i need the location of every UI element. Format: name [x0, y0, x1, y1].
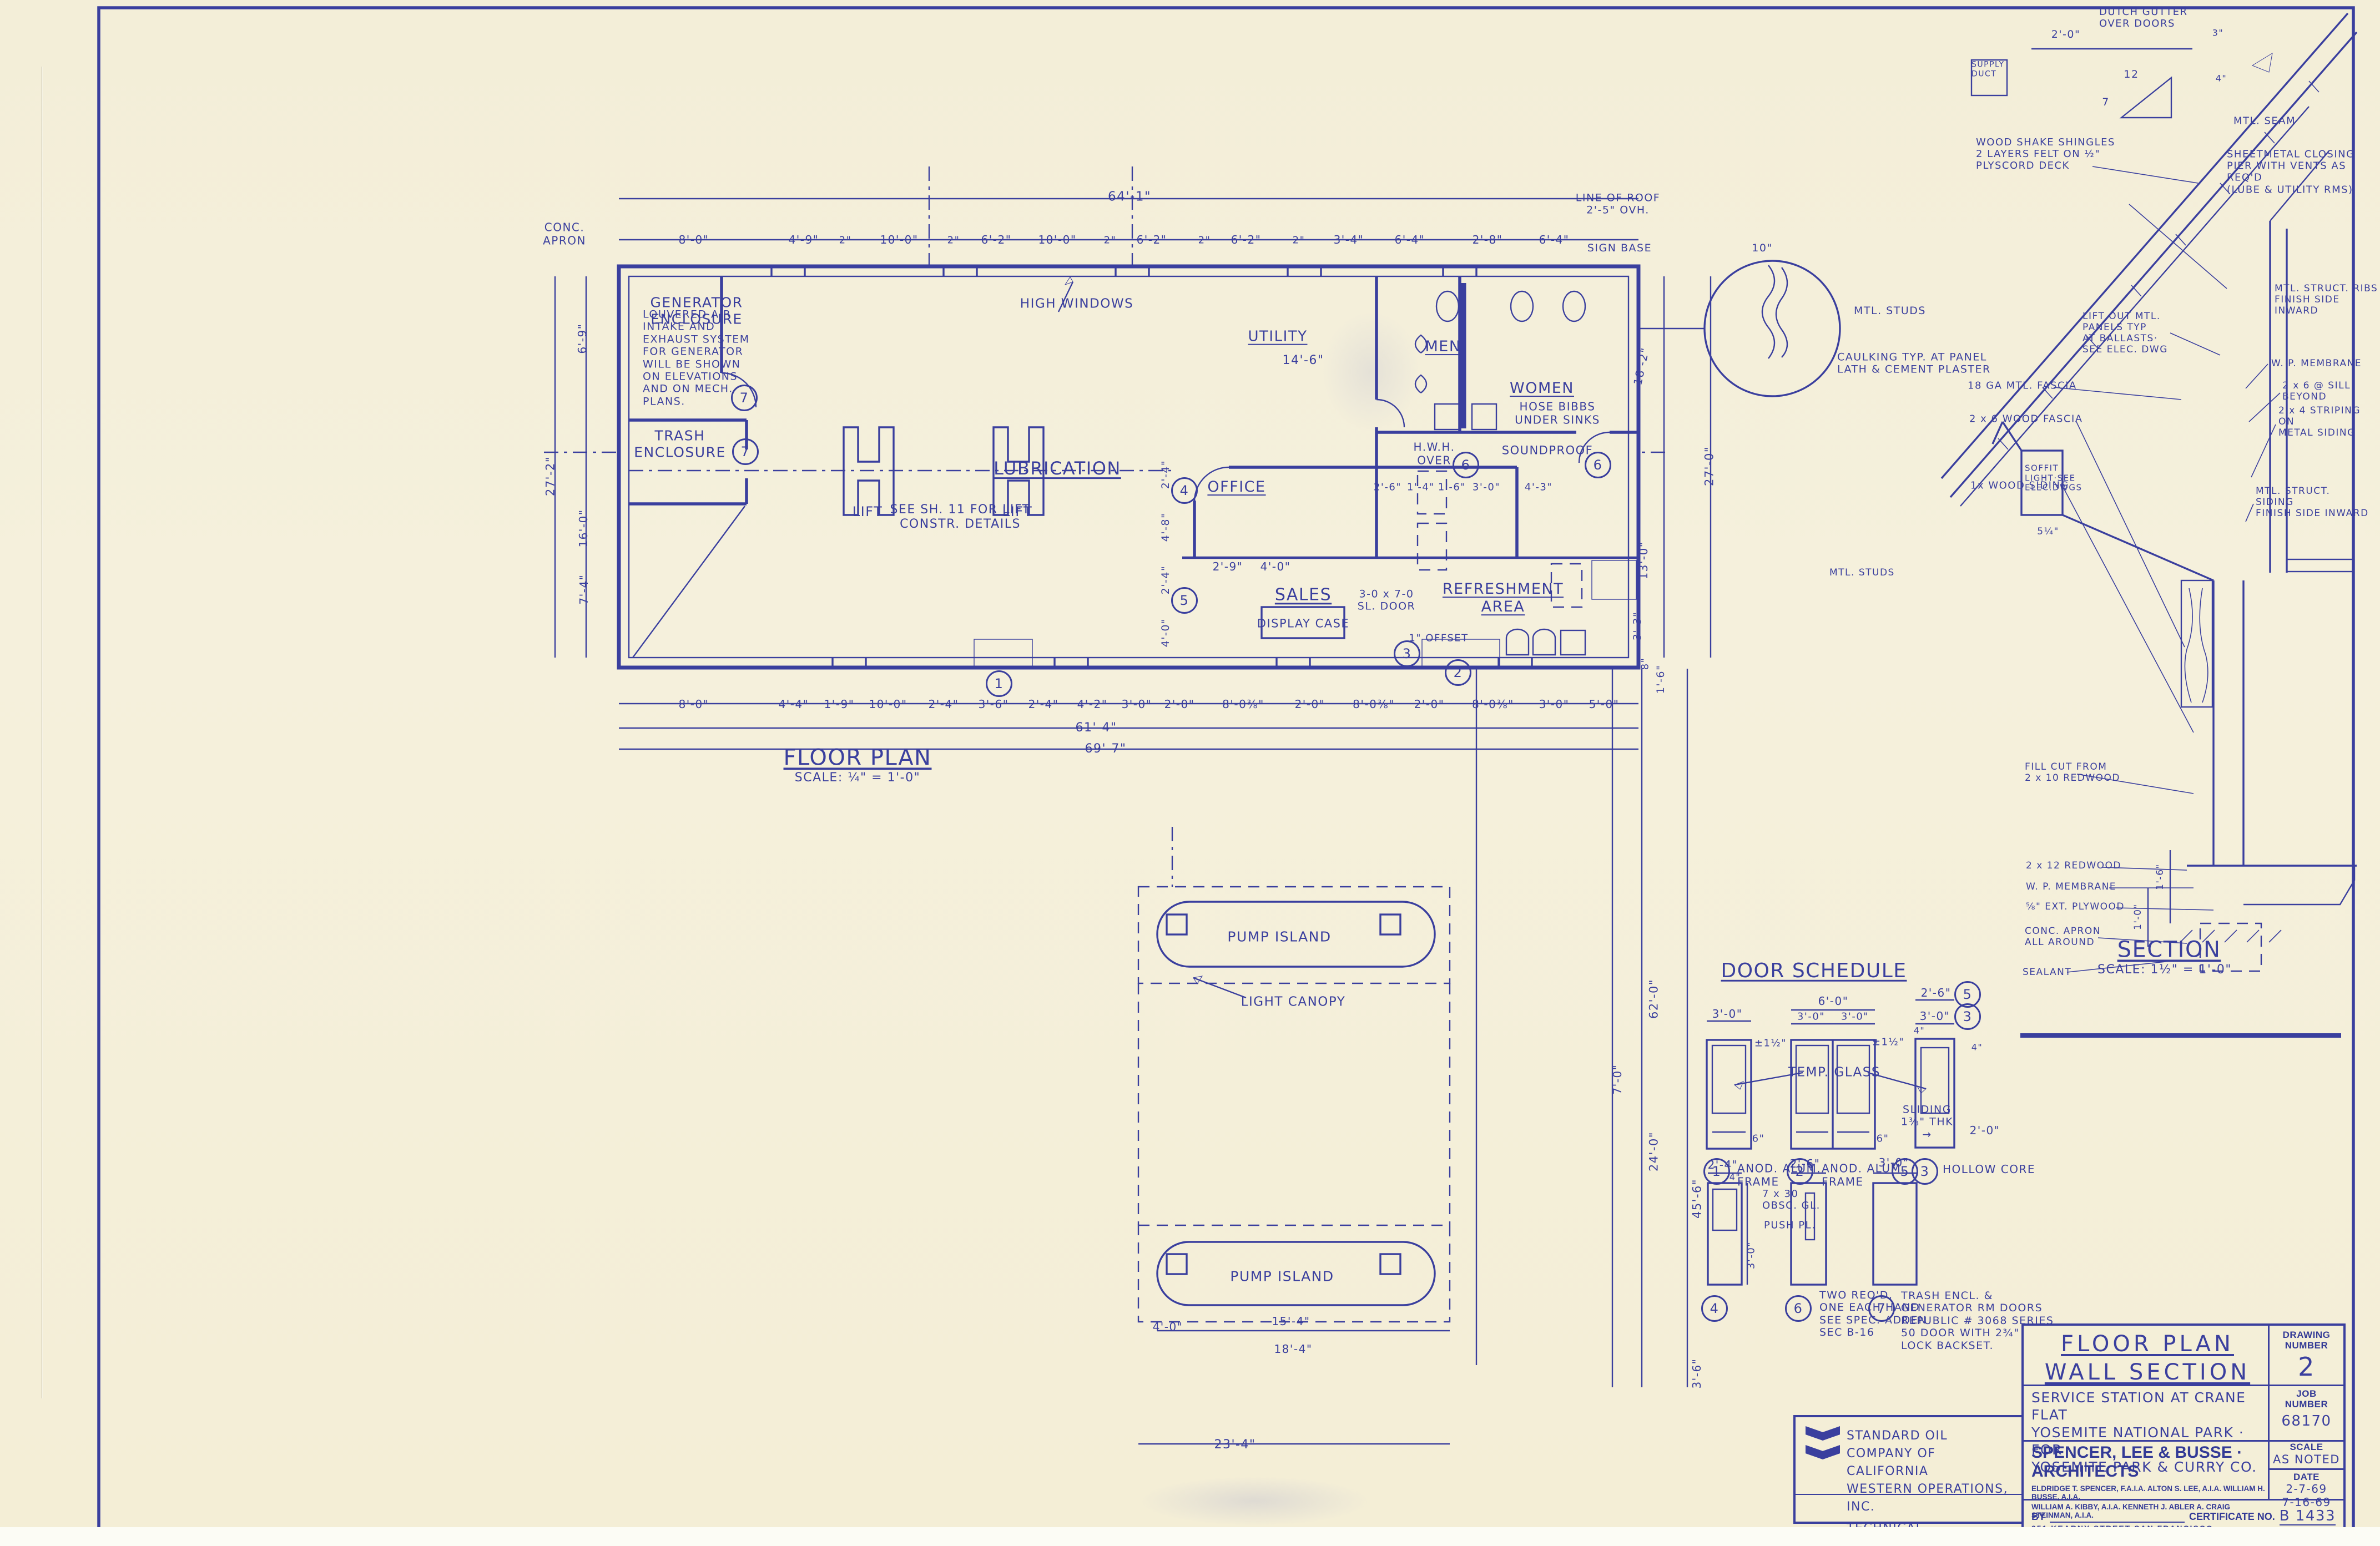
- annotation-text: 10'-0": [1038, 234, 1076, 247]
- annotation-text: 3'-4": [1334, 234, 1364, 247]
- annotation-text: W. P. MEMBRANE: [2026, 881, 2116, 892]
- annotation-text: 1'-6": [2155, 863, 2166, 890]
- annotation-text: 2 x 6 WOOD FASCIA: [1969, 413, 2083, 425]
- keynote-circle-4: 4: [1701, 1295, 1728, 1322]
- annotation-text: 2'-9": [1213, 560, 1243, 574]
- keynote-circle-2: 2: [1445, 659, 1471, 686]
- drawing-number-value: 2: [2270, 1352, 2343, 1382]
- keynote-circle-6: 6: [1785, 1295, 1812, 1322]
- lift-label: LIFT: [853, 504, 883, 519]
- annotation-text: CAULKING TYP. AT PANEL LATH & CEMENT PLA…: [1837, 351, 1991, 376]
- annotation-text: W. P. MEMBRANE: [2271, 358, 2362, 369]
- door-schedule-title: DOOR SCHEDULE: [1721, 959, 1907, 983]
- floor-plan-title: FLOOR PLAN: [784, 745, 932, 771]
- annotation-text: 3'-6": [1691, 1358, 1704, 1389]
- project-name-line1: SERVICE STATION AT CRANE FLAT: [2031, 1389, 2266, 1424]
- annotation-text: SOUNDPROOF: [1502, 444, 1594, 458]
- keynote-circle-7: 7: [731, 385, 758, 411]
- keynote-circle-3: 3: [1394, 640, 1420, 667]
- annotation-text: 3'-0": [1841, 1011, 1869, 1022]
- annotation-text: 2'-0": [1414, 698, 1445, 711]
- keynote-circle-3: 3: [1912, 1158, 1938, 1185]
- annotation-text: 4'-3": [1525, 481, 1552, 493]
- annotation-text: LINE OF ROOF 2'-5" OVH.: [1576, 192, 1660, 217]
- display-case-label: DISPLAY CASE: [1257, 617, 1349, 631]
- architect-firm-name: SPENCER, LEE & BUSSE · ARCHITECTS: [2031, 1443, 2266, 1481]
- annotation-text: 2": [1293, 234, 1305, 246]
- annotation-text: 10": [1752, 242, 1772, 254]
- annotation-text: 23'-4": [1214, 1438, 1255, 1452]
- annotation-text: 18'-4": [1274, 1343, 1312, 1356]
- annotation-text: 3'-0": [1745, 1241, 1757, 1269]
- annotation-text: 15'-4": [1272, 1315, 1310, 1328]
- annotation-text: 6": [1877, 1133, 1889, 1144]
- room-label-men: MEN: [1425, 338, 1461, 356]
- annotation-text: MTL. STUDS: [1854, 305, 1926, 317]
- room-label-refreshment-area: REFRESHMENT AREA: [1443, 580, 1564, 616]
- annotation-text: ±1½": [1872, 1036, 1904, 1048]
- annotation-text: WOOD SHAKE SHINGLES 2 LAYERS FELT ON ½" …: [1976, 137, 2115, 172]
- annotation-text: 8": [1639, 658, 1651, 670]
- annotation-text: 10'-0": [880, 234, 918, 247]
- annotation-text: 2 x 12 REDWOOD: [2026, 860, 2121, 871]
- annotation-text: 4'-2": [1077, 698, 1108, 711]
- annotation-text: 2": [1104, 234, 1117, 246]
- annotation-text: ±1½": [1754, 1037, 1787, 1049]
- job-number-value: 68170: [2270, 1413, 2343, 1429]
- annotation-text: 27'-0": [1703, 446, 1717, 486]
- annotation-text: 3'-0": [1712, 1008, 1743, 1021]
- annotation-text: CONC. APRON: [543, 221, 586, 247]
- annotation-text: 64'-1": [1108, 189, 1151, 204]
- annotation-text: SIGN BASE: [1587, 242, 1652, 254]
- architect-address-2: 405 TOWN & COUNTRY VILLAGE PALO ALTO, CA…: [2031, 1543, 2266, 1546]
- client-role: TECHNICAL CONSULTANTS: [1847, 1520, 2017, 1546]
- room-label-trash-enclosure: TRASH ENCLOSURE: [634, 428, 726, 461]
- annotation-text: 3'-0": [1797, 1011, 1825, 1022]
- annotation-text: 2'-8": [1473, 234, 1503, 247]
- annotation-text: 1'-4": [1407, 481, 1435, 493]
- annotation-text: 4'-0": [1260, 560, 1291, 574]
- annotation-text: 4'-8": [1159, 513, 1172, 542]
- annotation-text: 3'-6": [979, 698, 1009, 711]
- section-scale: SCALE: 1½" = 1'-0": [2097, 963, 2232, 977]
- annotation-text: 1'-0": [2132, 903, 2144, 930]
- annotation-text: 2": [947, 234, 960, 246]
- keynote-circle-1: 1: [1703, 1158, 1730, 1185]
- annotation-text: 6'-0": [1818, 995, 1849, 1008]
- annotation-text: 2'-4": [1159, 565, 1172, 595]
- annotation-text: 2'-0": [1295, 698, 1325, 711]
- annotation-text: 62'-0": [1647, 979, 1661, 1019]
- annotation-text: CONC. APRON ALL AROUND: [2025, 926, 2101, 948]
- client-name: STANDARD OIL COMPANY OF CALIFORNIA: [1847, 1427, 2017, 1481]
- annotation-text: 4": [2216, 74, 2227, 84]
- annotation-text: 2'-0": [1164, 698, 1195, 711]
- sheet-title-line1: FLOOR PLAN: [2029, 1331, 2266, 1357]
- light-canopy-label: LIGHT CANOPY: [1241, 994, 1346, 1009]
- annotation-text: 4'-9": [789, 234, 819, 247]
- annotation-text: 1x WOOD SIDING: [1970, 479, 2069, 491]
- keynote-circle-1: 1: [986, 670, 1012, 697]
- annotation-text: SLIDING 1⅜" THK →: [1901, 1103, 1953, 1140]
- annotation-text: 4'-0": [1153, 1321, 1183, 1334]
- annotation-text: 3'-0": [1473, 481, 1500, 493]
- annotation-text: 4'-0": [1159, 618, 1172, 648]
- title-block: FLOOR PLAN WALL SECTION DRAWING NUMBER 2…: [2021, 1323, 2346, 1536]
- job-number-cell: JOB NUMBER 68170: [2268, 1385, 2343, 1440]
- room-label-utility: UTILITY: [1248, 329, 1308, 346]
- annotation-text: 2'-4": [1028, 698, 1059, 711]
- job-number-label: JOB NUMBER: [2270, 1389, 2343, 1409]
- annotation-text: 7'-4": [578, 574, 591, 605]
- annotation-text: 8'-0⅜": [1472, 698, 1514, 711]
- annotation-text: 27'-2": [544, 456, 558, 496]
- annotation-text: 6'-2": [1137, 234, 1167, 247]
- annotation-text: 8'-0⅜": [1222, 698, 1264, 711]
- annotation-text: HOLLOW CORE: [1943, 1163, 2035, 1176]
- annotation-text: FILL CUT FROM 2 x 10 REDWOOD: [2025, 761, 2120, 784]
- annotation-text: 8'-0": [679, 698, 709, 711]
- annotation-text: ⅝" EXT. PLYWOOD: [2026, 901, 2125, 912]
- annotation-text: 5'-0": [1589, 698, 1620, 711]
- annotation-text: DUTCH GUTTER OVER DOORS: [2099, 6, 2187, 29]
- annotation-text: 1" OFFSET: [1409, 632, 1468, 644]
- annotation-text: 3'-0": [1920, 1010, 1950, 1023]
- keynote-circle-2: 2: [1787, 1158, 1813, 1185]
- keynote-circle-7: 7: [1868, 1295, 1895, 1322]
- annotation-text: MTL. SEAM: [2233, 115, 2296, 127]
- annotation-text: 18 GA MTL. FASCIA: [1968, 380, 2077, 391]
- annotation-text: 16'-0": [577, 509, 591, 547]
- annotation-text: 3'-0": [1122, 698, 1152, 711]
- floor-plan-scale: SCALE: ¼" = 1'-0": [795, 771, 920, 785]
- annotation-text: 1'-6": [1438, 481, 1466, 493]
- keynote-circle-6: 6: [1585, 452, 1611, 478]
- annotation-text: 4'-4": [779, 698, 809, 711]
- annotation-text: 2'-6": [1921, 987, 1952, 1000]
- annotation-text: 2": [1198, 234, 1211, 246]
- annotation-text: 3'-3": [1631, 612, 1643, 641]
- annotation-text: 14'-6": [1282, 353, 1324, 368]
- annotation-text: 6'-4": [1539, 234, 1570, 247]
- annotation-text: LIFT OUT MTL. PANELS TYP AT BALLASTS· SE…: [2082, 311, 2168, 355]
- annotation-text: HIGH WINDOWS: [1020, 296, 1133, 311]
- room-label-women: WOMEN: [1510, 380, 1574, 397]
- annotation-text: SEE SH. 11 FOR LIFT CONSTR. DETAILS: [890, 503, 1030, 532]
- annotation-text: 13'-0": [1637, 541, 1651, 579]
- annotation-text: 10'-0": [869, 698, 907, 711]
- drawing-number-label: DRAWING NUMBER: [2270, 1330, 2343, 1351]
- annotation-text: 7: [2102, 96, 2110, 108]
- annotation-text: 45'-6": [1691, 1179, 1705, 1219]
- annotation-text: 4": [1729, 1173, 1741, 1183]
- date-label: DATE: [2270, 1472, 2343, 1483]
- annotation-text: 8'-0": [679, 234, 709, 247]
- annotation-text: 6": [1752, 1133, 1765, 1144]
- section-title: SECTION: [2117, 937, 2221, 963]
- annotation-text: 2'-6": [1374, 481, 1401, 493]
- annotation-text: 1'-9": [824, 698, 855, 711]
- annotation-text: 24'-0": [1647, 1131, 1661, 1171]
- keynote-circle-6: 6: [1453, 452, 1479, 478]
- annotation-text: 2'-0": [2051, 28, 2081, 41]
- annotation-text: 61'-4": [1075, 721, 1117, 735]
- annotation-text: 2 x 4 STRIPING ON METAL SIDING: [2278, 405, 2380, 438]
- annotation-text: 6'-9": [576, 324, 589, 354]
- certificate-label: CERTIFICATE NO.: [2189, 1511, 2275, 1523]
- pump-island-label: PUMP ISLAND: [1230, 1268, 1334, 1285]
- annotation-text: 1'-6": [1655, 665, 1667, 694]
- annotation-text: 6'-2": [1231, 234, 1262, 247]
- annotation-text: 2'-4": [1159, 460, 1172, 489]
- annotation-text: 6'-4": [1395, 234, 1425, 247]
- room-label-sales: SALES: [1275, 585, 1332, 604]
- annotation-text: 8'-0⅜": [1353, 698, 1395, 711]
- annotation-text: 12: [2124, 68, 2139, 80]
- blueprint-sheet: FLOOR PLANSCALE: ¼" = 1'-0"SECTIONSCALE:…: [0, 0, 2380, 1546]
- annotation-text: MTL. STUDS: [1829, 567, 1895, 578]
- sheet-title-line2: WALL SECTION: [2029, 1360, 2266, 1386]
- by-label: BY: [2031, 1511, 2045, 1523]
- interior-finish-schedule: [2020, 1033, 2341, 1038]
- pump-island-label: PUMP ISLAND: [1227, 928, 1331, 945]
- keynote-circle-5: 5: [1171, 587, 1198, 614]
- keynote-circle-3: 3: [1954, 1003, 1981, 1030]
- annotation-text: 3-0 x 7-0 SL. DOOR: [1358, 588, 1415, 613]
- annotation-text: 2": [839, 234, 852, 246]
- annotation-text: 69'-7": [1085, 742, 1126, 756]
- annotation-text: 4": [1914, 1026, 1925, 1037]
- room-label-lubrication: LUBRICATION: [994, 458, 1121, 479]
- drawing-number-cell: DRAWING NUMBER 2: [2268, 1326, 2343, 1385]
- annotation-text: 7 x 30 OBSC. GL.: [1762, 1188, 1821, 1211]
- annotation-text: 7'-0": [1611, 1064, 1625, 1095]
- date-value-1: 2-7-69: [2270, 1482, 2343, 1496]
- scale-value: AS NOTED: [2270, 1453, 2343, 1466]
- annotation-text: HOSE BIBBS UNDER SINKS: [1515, 400, 1600, 426]
- annotation-text: PUSH PL.: [1764, 1219, 1816, 1231]
- annotation-text: MTL. STRUCT. SIDING FINISH SIDE INWARD: [2256, 486, 2369, 519]
- annotation-text: 4": [1971, 1043, 1983, 1053]
- client-division: WESTERN OPERATIONS, INC.: [1847, 1481, 2017, 1516]
- scale-label: SCALE: [2270, 1442, 2343, 1453]
- annotation-text: 2 x 6 @ SILL BEYOND: [2282, 380, 2351, 402]
- temp-glass-note: TEMP. GLASS: [1788, 1065, 1880, 1080]
- annotation-text: 3'-0": [1539, 698, 1570, 711]
- client-block-divider: [1796, 1494, 2021, 1495]
- annotation-text: H.W.H. OVER: [1414, 441, 1455, 467]
- by-signature-line: [2050, 1510, 2185, 1523]
- annotation-text: SUPPLY DUCT: [1971, 60, 2005, 78]
- standard-oil-chevron-logo: [1806, 1426, 1840, 1462]
- annotation-text: 5¼": [2037, 526, 2059, 537]
- annotation-text: 2'-0": [1970, 1124, 2000, 1138]
- certificate-value: B 1433: [2280, 1508, 2336, 1525]
- room-label-office: OFFICE: [1207, 478, 1265, 496]
- annotation-text: MTL. STRUCT. RIBS FINISH SIDE INWARD: [2275, 283, 2380, 316]
- annotation-text: SHEETMETAL CLOSING PIER WITH VENTS AS RE…: [2227, 149, 2380, 196]
- keynote-circle-4: 4: [1171, 477, 1198, 504]
- annotation-text: SEALANT: [2023, 967, 2071, 978]
- annotation-text: 3": [2212, 28, 2224, 39]
- keynote-circle-7: 7: [732, 438, 759, 465]
- annotation-text: 2'-4": [929, 698, 959, 711]
- annotation-text: 6'-2": [981, 234, 1012, 247]
- client-block: STANDARD OIL COMPANY OF CALIFORNIA WESTE…: [1793, 1415, 2024, 1524]
- scale-date-cell: SCALE AS NOTED DATE 2-7-69 7-16-69: [2268, 1440, 2343, 1499]
